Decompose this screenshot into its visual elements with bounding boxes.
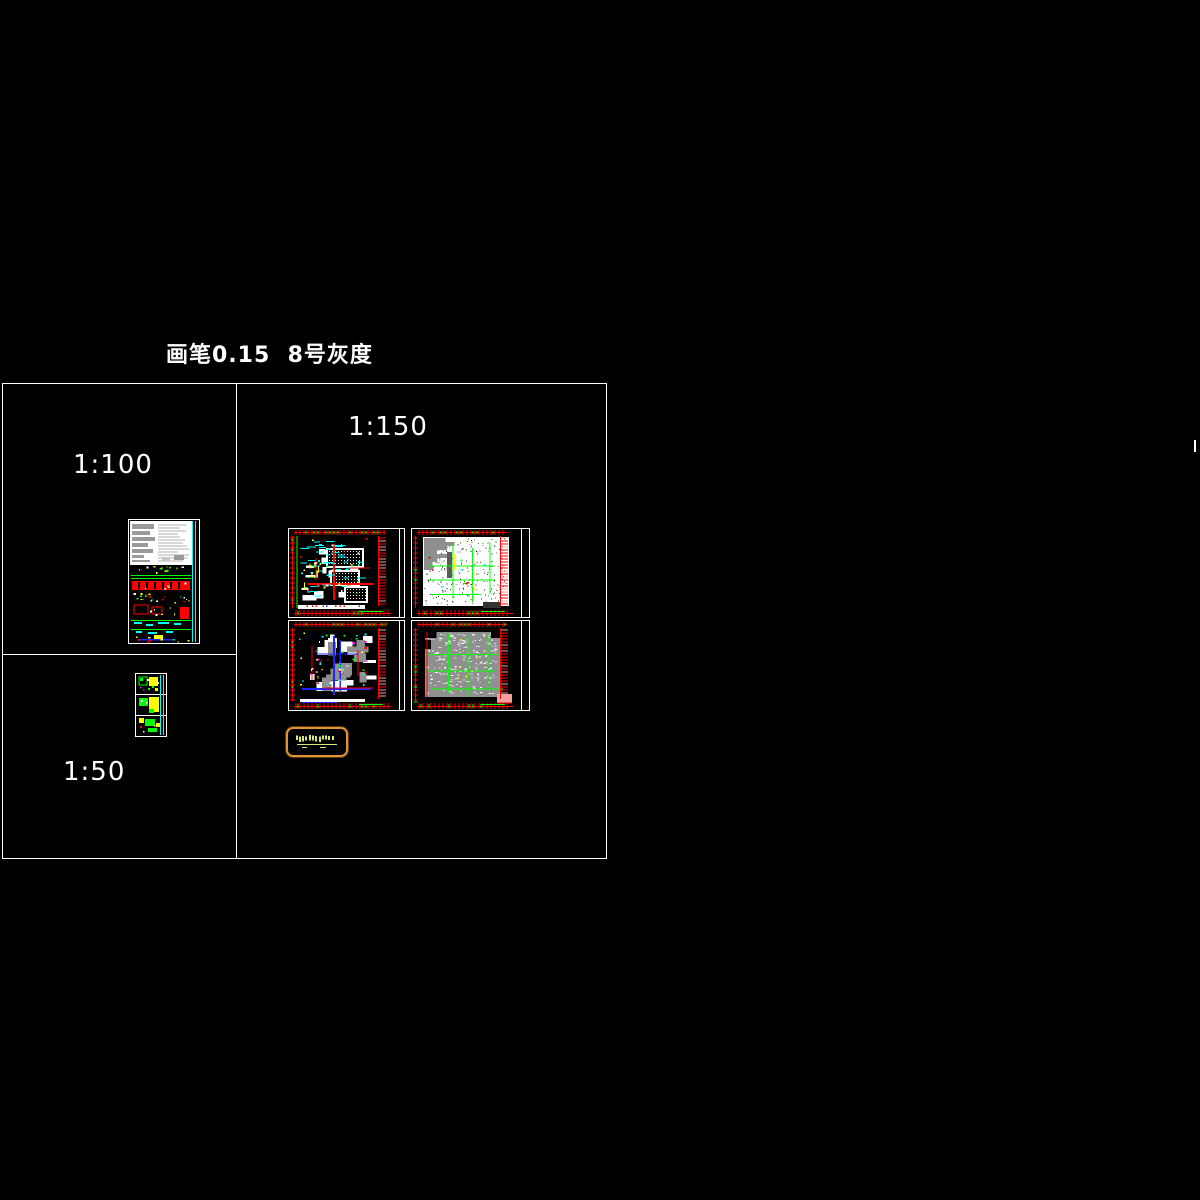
drawing-sheet-1-50[interactable] — [135, 673, 167, 737]
scale-label-1-150[interactable]: 1:150 — [348, 412, 428, 442]
title-stamp-glyphs — [288, 729, 346, 755]
cad-canvas: 画笔0.15 8号灰度 1:100 1:150 1:50 — [0, 0, 1200, 1200]
floor-plan-bottom-right[interactable] — [411, 620, 530, 711]
frame-vertical-divider — [236, 384, 237, 858]
pen-settings-text[interactable]: 画笔0.15 8号灰度 — [166, 337, 373, 369]
right-edge-artifact — [1194, 440, 1196, 452]
drawing-sheet-1-100[interactable] — [128, 519, 200, 644]
frame-horizontal-divider — [3, 654, 236, 655]
floor-plan-bottom-left[interactable] — [288, 620, 405, 711]
floor-plan-top-left[interactable] — [288, 528, 405, 618]
title-stamp-box[interactable] — [286, 727, 348, 757]
scale-label-1-50[interactable]: 1:50 — [63, 757, 125, 787]
scale-label-1-100[interactable]: 1:100 — [73, 450, 153, 480]
floor-plan-top-right[interactable] — [411, 528, 530, 618]
